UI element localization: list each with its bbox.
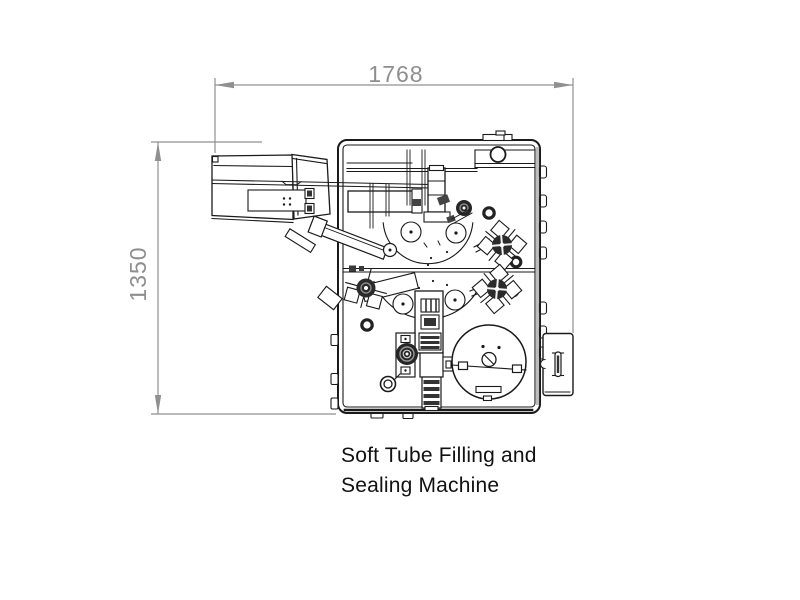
side-attachment-box (541, 334, 574, 396)
height-arrow-bottom (155, 395, 161, 414)
drive-gear (396, 343, 418, 365)
caption-line-1: Soft Tube Filling and (341, 441, 537, 471)
width-arrow-right (554, 82, 573, 88)
width-arrow-left (215, 82, 234, 88)
panel-port (491, 147, 506, 162)
top-fitting (483, 131, 512, 141)
caption-line-2: Sealing Machine (341, 471, 537, 501)
machine-drawing (212, 131, 573, 419)
eye-ring (381, 377, 396, 392)
height-arrow-top (155, 142, 161, 161)
height-dimension-label: 1350 (125, 235, 151, 313)
machine-caption: Soft Tube Filling and Sealing Machine (341, 441, 537, 501)
left-edge-fittings (331, 335, 338, 410)
tube-magazine (248, 189, 314, 214)
width-dimension-label: 1768 (357, 61, 435, 87)
machine-line-art (0, 0, 800, 600)
rotary-disc (452, 325, 526, 401)
diagram-canvas: 1768 1350 Soft Tube Filling and Sealing … (0, 0, 800, 600)
feeder-tray (212, 155, 330, 223)
